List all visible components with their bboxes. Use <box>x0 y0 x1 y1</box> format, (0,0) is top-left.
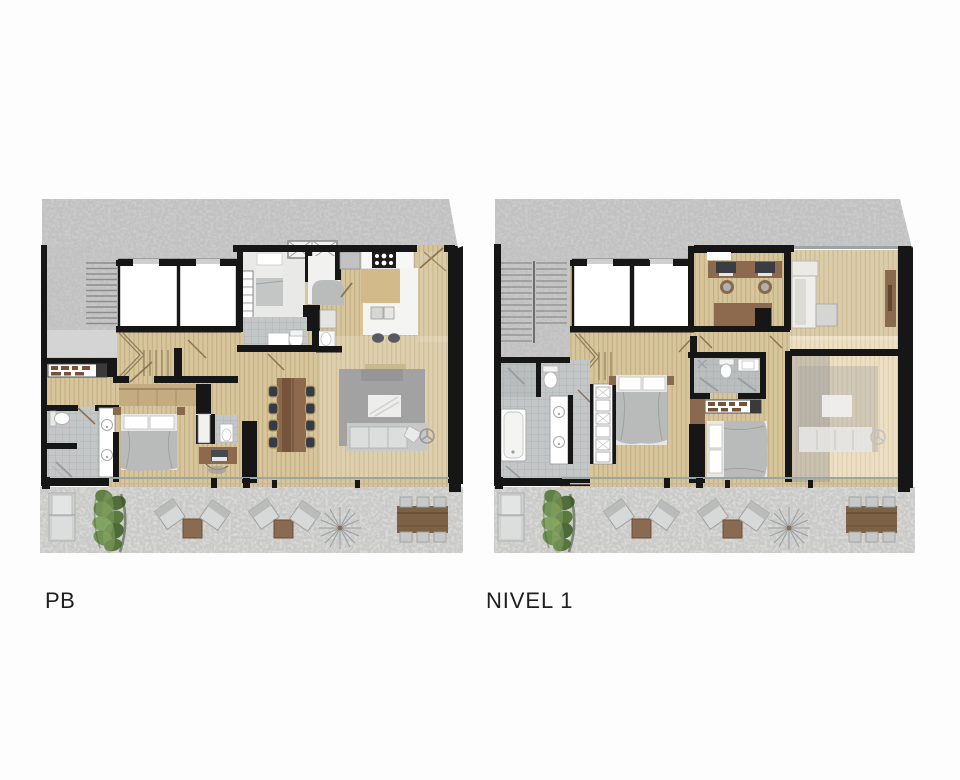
svg-text:PB: PB <box>45 588 75 613</box>
svg-text:NIVEL 1: NIVEL 1 <box>486 588 573 613</box>
